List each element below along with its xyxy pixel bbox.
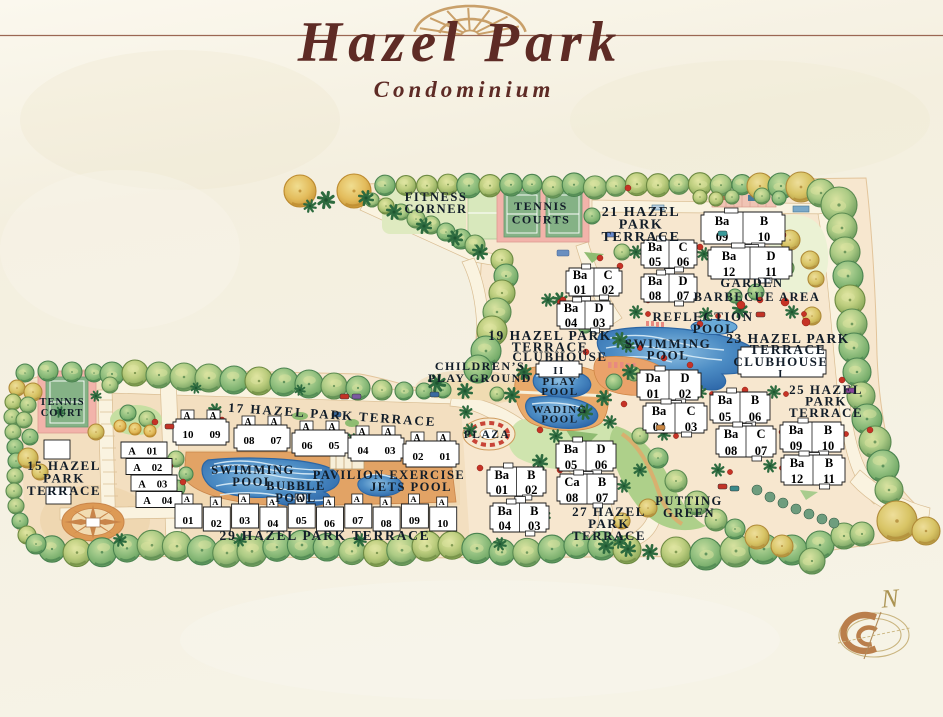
svg-text:09: 09	[210, 429, 222, 441]
svg-text:PLAY GROUND: PLAY GROUND	[428, 371, 532, 385]
svg-text:JETS POOL: JETS POOL	[370, 480, 452, 494]
svg-text:I: I	[778, 368, 784, 380]
svg-text:Ba: Ba	[648, 274, 663, 288]
svg-text:PLAZA: PLAZA	[464, 429, 510, 441]
svg-text:B: B	[598, 475, 606, 489]
svg-text:04: 04	[358, 445, 370, 457]
svg-text:01: 01	[147, 447, 158, 458]
svg-text:BARBECUE AREA: BARBECUE AREA	[694, 290, 821, 304]
svg-text:A: A	[212, 497, 219, 507]
svg-text:07: 07	[755, 444, 768, 458]
svg-text:COURTS: COURTS	[512, 213, 571, 227]
svg-text:Condominium: Condominium	[374, 77, 555, 102]
svg-text:02: 02	[602, 283, 615, 297]
svg-text:02: 02	[413, 451, 425, 463]
svg-text:06: 06	[595, 458, 608, 472]
svg-text:A: A	[138, 480, 146, 491]
svg-text:B: B	[530, 504, 538, 518]
svg-text:Ba: Ba	[790, 456, 805, 470]
svg-text:A: A	[241, 494, 248, 504]
svg-text:07: 07	[352, 515, 364, 527]
svg-text:10: 10	[183, 429, 195, 441]
svg-text:11: 11	[823, 472, 835, 486]
svg-text:06: 06	[677, 255, 690, 269]
svg-text:05: 05	[649, 255, 662, 269]
svg-text:Ca: Ca	[564, 475, 580, 489]
svg-text:08: 08	[725, 444, 738, 458]
svg-text:06: 06	[749, 410, 762, 424]
svg-text:29 HAZEL PARK TERRACE: 29 HAZEL PARK TERRACE	[220, 528, 431, 543]
svg-text:Ba: Ba	[573, 268, 588, 282]
svg-text:08: 08	[244, 435, 256, 447]
svg-text:01: 01	[647, 387, 660, 401]
svg-text:C: C	[603, 268, 612, 282]
svg-text:B: B	[824, 423, 832, 437]
svg-text:B: B	[751, 393, 759, 407]
svg-text:D: D	[596, 442, 605, 456]
svg-text:B: B	[760, 214, 768, 228]
svg-text:08: 08	[566, 491, 579, 505]
svg-text:03: 03	[385, 445, 397, 457]
svg-text:A: A	[143, 496, 151, 507]
svg-text:Ba: Ba	[724, 427, 739, 441]
svg-text:Ba: Ba	[564, 301, 579, 315]
svg-text:Ba: Ba	[722, 249, 737, 263]
svg-text:TERRACE: TERRACE	[27, 483, 101, 498]
svg-text:07: 07	[271, 435, 283, 447]
svg-text:05: 05	[719, 410, 732, 424]
svg-text:04: 04	[499, 519, 512, 533]
svg-text:Ba: Ba	[718, 393, 733, 407]
svg-text:GARDEN: GARDEN	[720, 276, 783, 290]
svg-text:Hazel Park: Hazel Park	[297, 11, 622, 74]
svg-text:A: A	[128, 447, 136, 458]
svg-text:04: 04	[162, 496, 173, 507]
svg-text:Da: Da	[645, 371, 661, 385]
svg-text:Ba: Ba	[715, 214, 730, 228]
svg-text:01: 01	[496, 483, 509, 497]
svg-text:D: D	[766, 249, 775, 263]
svg-text:Ba: Ba	[652, 404, 667, 418]
svg-text:A: A	[410, 494, 417, 504]
svg-text:A: A	[325, 497, 332, 507]
svg-text:POOL: POOL	[541, 414, 578, 426]
svg-text:A: A	[354, 494, 361, 504]
svg-text:B: B	[825, 456, 833, 470]
svg-text:A: A	[329, 422, 336, 432]
svg-text:TERRACE: TERRACE	[789, 405, 863, 420]
svg-text:C: C	[686, 404, 695, 418]
svg-text:03: 03	[239, 515, 251, 527]
svg-text:02: 02	[152, 463, 163, 474]
svg-text:01: 01	[440, 451, 451, 463]
svg-text:08: 08	[649, 289, 662, 303]
svg-text:A: A	[385, 427, 392, 437]
svg-text:TENNIS: TENNIS	[514, 199, 568, 213]
svg-text:02: 02	[679, 387, 692, 401]
svg-text:A: A	[184, 411, 191, 421]
svg-text:D: D	[594, 301, 603, 315]
svg-text:10: 10	[437, 518, 449, 530]
svg-text:Ba: Ba	[494, 468, 509, 482]
svg-text:03: 03	[157, 480, 168, 491]
svg-text:A: A	[382, 497, 389, 507]
svg-text:TENNIS: TENNIS	[39, 397, 84, 408]
svg-text:10: 10	[758, 230, 771, 244]
svg-text:07: 07	[677, 289, 690, 303]
svg-text:05: 05	[296, 515, 308, 527]
svg-text:POOL: POOL	[275, 491, 316, 505]
svg-text:TERRACE: TERRACE	[572, 528, 646, 543]
svg-text:01: 01	[183, 515, 194, 527]
svg-text:10: 10	[822, 439, 835, 453]
svg-text:02: 02	[525, 483, 538, 497]
svg-text:A: A	[414, 433, 421, 443]
svg-text:A: A	[184, 494, 191, 504]
svg-text:Ba: Ba	[789, 423, 804, 437]
svg-text:05: 05	[329, 440, 341, 452]
svg-text:C: C	[756, 427, 765, 441]
svg-text:POOL: POOL	[541, 386, 578, 398]
svg-text:Ba: Ba	[497, 504, 512, 518]
svg-text:03: 03	[528, 519, 541, 533]
svg-text:A: A	[359, 427, 366, 437]
svg-text:CLUBHOUSE: CLUBHOUSE	[512, 349, 607, 364]
svg-text:A: A	[133, 463, 141, 474]
svg-text:06: 06	[302, 440, 314, 452]
svg-text:POOL: POOL	[647, 348, 690, 363]
svg-text:D: D	[678, 274, 687, 288]
svg-text:12: 12	[791, 472, 804, 486]
svg-text:07: 07	[596, 491, 609, 505]
svg-text:TERRACE: TERRACE	[602, 230, 681, 245]
svg-text:A: A	[440, 433, 447, 443]
svg-text:CLUBHOUSE: CLUBHOUSE	[733, 354, 828, 369]
svg-text:A: A	[303, 422, 310, 432]
svg-text:A: A	[245, 417, 252, 427]
svg-text:A: A	[439, 497, 446, 507]
svg-text:01: 01	[574, 283, 587, 297]
svg-text:Ba: Ba	[564, 442, 579, 456]
svg-text:COURT: COURT	[41, 408, 84, 419]
svg-text:CORNER: CORNER	[404, 202, 467, 216]
svg-text:09: 09	[409, 515, 421, 527]
svg-text:B: B	[527, 468, 535, 482]
svg-text:A: A	[210, 411, 217, 421]
svg-text:03: 03	[685, 420, 698, 434]
svg-text:GREEN: GREEN	[663, 506, 715, 520]
svg-text:D: D	[680, 371, 689, 385]
